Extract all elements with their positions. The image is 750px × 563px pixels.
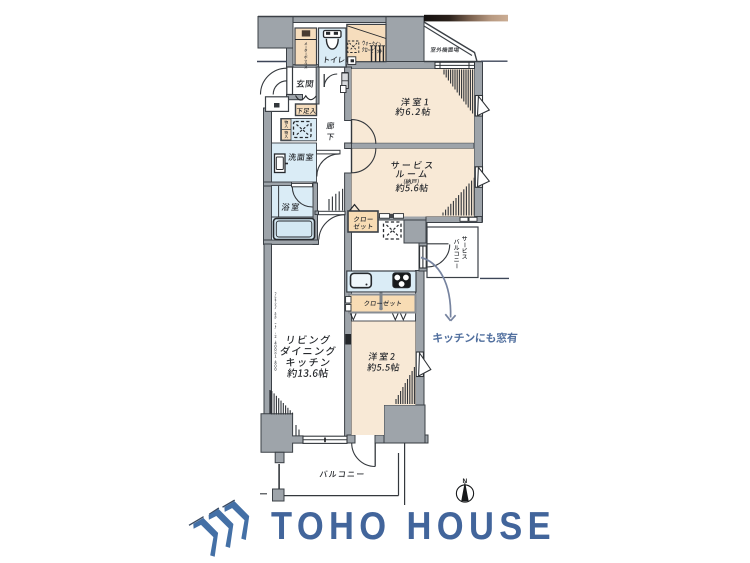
svg-text:N: N: [462, 478, 467, 485]
svg-text:TOHO HOUSE: TOHO HOUSE: [271, 505, 556, 548]
